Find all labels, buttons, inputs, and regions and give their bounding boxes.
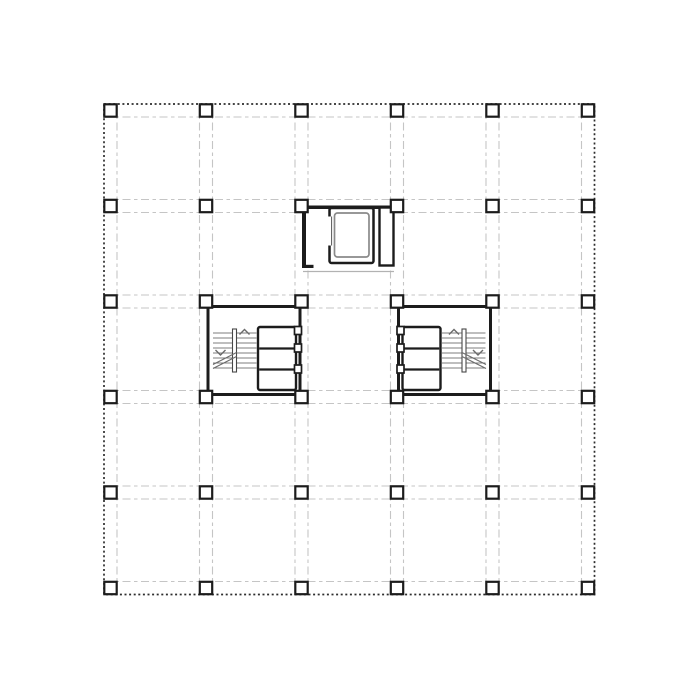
structural-column	[200, 582, 212, 594]
structural-column	[582, 391, 594, 403]
structural-column	[295, 200, 307, 212]
structural-column	[582, 104, 594, 116]
structural-column	[486, 582, 498, 594]
structural-column	[486, 200, 498, 212]
structural-column	[104, 582, 116, 594]
structural-column	[295, 582, 307, 594]
structural-column	[295, 391, 307, 403]
elevator-door-jamb	[397, 344, 404, 352]
structural-column	[104, 104, 116, 116]
structural-column	[104, 200, 116, 212]
structural-column	[486, 391, 498, 403]
structural-column	[486, 104, 498, 116]
structural-column	[295, 295, 307, 307]
structural-column	[391, 295, 403, 307]
service-duct	[380, 208, 394, 266]
structural-column	[200, 486, 212, 498]
structural-column	[391, 104, 403, 116]
structural-column	[295, 104, 307, 116]
structural-column	[104, 391, 116, 403]
elevator-shaft	[403, 327, 441, 390]
structural-column	[391, 486, 403, 498]
elevator-door-jamb	[295, 344, 302, 352]
structural-column	[200, 200, 212, 212]
floor-plan	[0, 0, 700, 700]
elevator-door-jamb	[295, 365, 302, 373]
structural-column	[582, 295, 594, 307]
structural-column	[200, 391, 212, 403]
structural-column	[200, 104, 212, 116]
elevator-door-jamb	[295, 327, 302, 335]
stair-handrail	[233, 329, 237, 372]
structural-column	[391, 391, 403, 403]
service-core-left-wall	[302, 206, 306, 269]
elevator-door-jamb	[397, 327, 404, 335]
elevator-shaft	[330, 208, 374, 263]
structural-column	[582, 486, 594, 498]
structural-column	[104, 295, 116, 307]
structural-column	[391, 200, 403, 212]
structural-column	[104, 486, 116, 498]
floor-plan-drawing	[0, 0, 700, 700]
structural-column	[582, 200, 594, 212]
structural-column	[582, 582, 594, 594]
elevator-shaft	[258, 327, 296, 390]
elevator-door-opening	[328, 217, 332, 246]
structural-column	[295, 486, 307, 498]
stair-handrail	[462, 329, 466, 372]
structural-column	[200, 295, 212, 307]
structural-column	[486, 295, 498, 307]
service-core-wall-return	[302, 265, 314, 268]
structural-column	[486, 486, 498, 498]
structural-column	[391, 582, 403, 594]
elevator-door-jamb	[397, 365, 404, 373]
